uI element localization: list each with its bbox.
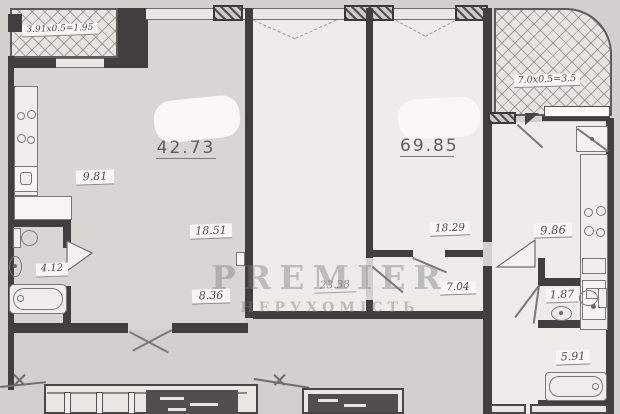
window	[544, 106, 610, 117]
wall	[373, 250, 413, 257]
toilet-icon	[598, 288, 607, 308]
watermark-line2: НЕРУХОМІСТЬ	[200, 300, 460, 316]
floor-plan-canvas: 3.91x0.5=1.95 7.0x0.5=3.5	[0, 0, 620, 414]
window-mullion	[96, 392, 103, 414]
door-swing	[495, 238, 537, 270]
lower-unit-wall	[530, 404, 608, 414]
lower-unit-dark-window	[308, 394, 398, 412]
balcony-right	[494, 8, 612, 116]
wall	[538, 258, 545, 280]
window-mullion	[128, 392, 135, 414]
room-area-label-room-left: 18.51	[190, 223, 232, 239]
cabinet	[582, 258, 606, 274]
room-area-label-wc-right: 1.87	[546, 287, 578, 303]
watermark-line1: PREMIER	[200, 258, 460, 297]
correction-blob	[397, 96, 481, 140]
stove-icon	[17, 134, 26, 143]
stove-icon	[596, 206, 606, 216]
window-reflection	[160, 397, 184, 400]
fridge-icon	[590, 137, 594, 141]
window-reflection	[190, 403, 218, 406]
sink-drain	[559, 311, 563, 315]
room-area-label-bedroom-middle: 18.29	[430, 221, 470, 237]
window-glass-mark	[524, 112, 540, 126]
room-area-label-kitchen-right: 9.86	[534, 222, 573, 239]
cabinet	[14, 196, 72, 220]
total-area-left: 42.73	[156, 138, 216, 159]
wall	[118, 8, 148, 66]
balcony-right-area-label: 7.0x0.5=3.5	[514, 73, 580, 88]
wall	[172, 323, 248, 333]
wall	[483, 266, 492, 414]
wall	[8, 220, 70, 227]
stove-icon	[27, 136, 35, 144]
bathtub-drain	[592, 383, 599, 390]
room-area-label-kitchen-left: 9.81	[76, 169, 114, 185]
stove-icon	[584, 208, 593, 217]
toilet-icon	[13, 228, 21, 248]
wall	[8, 58, 56, 68]
wall	[483, 8, 492, 242]
door-swing	[132, 330, 172, 352]
stove-icon	[584, 226, 594, 236]
wall	[8, 14, 22, 32]
wall	[445, 250, 483, 257]
window-reflection	[344, 404, 366, 407]
room-area-label-bath-right: 5.91	[556, 349, 590, 365]
stove-icon	[596, 228, 605, 237]
sink-icon	[20, 172, 32, 185]
door-swing	[66, 238, 96, 274]
wall	[213, 5, 243, 21]
window	[56, 58, 104, 68]
bathtub-drain	[17, 295, 24, 302]
room-area-label-bath-left: 4.12	[36, 262, 68, 277]
stove-icon	[17, 112, 25, 120]
window-reflection	[318, 399, 338, 402]
window	[146, 8, 492, 20]
sink-drain	[13, 264, 17, 268]
lower-unit-wall	[490, 404, 526, 414]
total-area-right: 69.85	[400, 136, 454, 157]
stove-icon	[27, 110, 36, 119]
window-mullion	[64, 392, 71, 414]
toilet-icon	[579, 290, 598, 306]
wall	[366, 8, 373, 258]
lower-unit-dark-window	[146, 390, 238, 414]
window-reflection	[168, 408, 186, 411]
toilet-icon	[21, 230, 38, 246]
wall	[488, 112, 516, 124]
